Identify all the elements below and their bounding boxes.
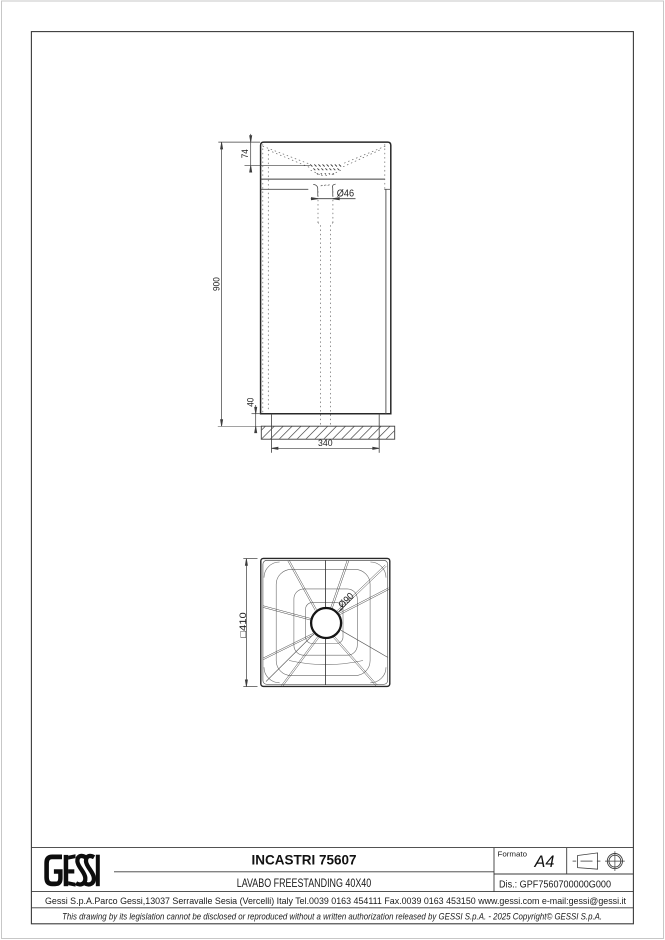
svg-text:A4: A4 [534,853,555,871]
svg-text:□410: □410 [238,612,248,638]
svg-text:Formato: Formato [498,849,528,858]
svg-text:74: 74 [240,149,250,158]
svg-text:Dis.: GPF7560700000G000: Dis.: GPF7560700000G000 [499,879,611,890]
svg-text:This drawing by its legislatio: This drawing by its legislation cannot b… [62,911,602,921]
svg-text:40: 40 [245,398,255,407]
svg-text:340: 340 [318,438,333,448]
svg-text:Gessi S.p.A.Parco Gessi,13037: Gessi S.p.A.Parco Gessi,13037 Serravalle… [45,896,626,906]
svg-text:INCASTRI 75607: INCASTRI 75607 [252,851,357,867]
svg-text:Ø46: Ø46 [337,189,355,200]
svg-text:LAVABO FREESTANDING 40X40: LAVABO FREESTANDING 40X40 [237,876,372,890]
svg-text:900: 900 [212,277,222,291]
